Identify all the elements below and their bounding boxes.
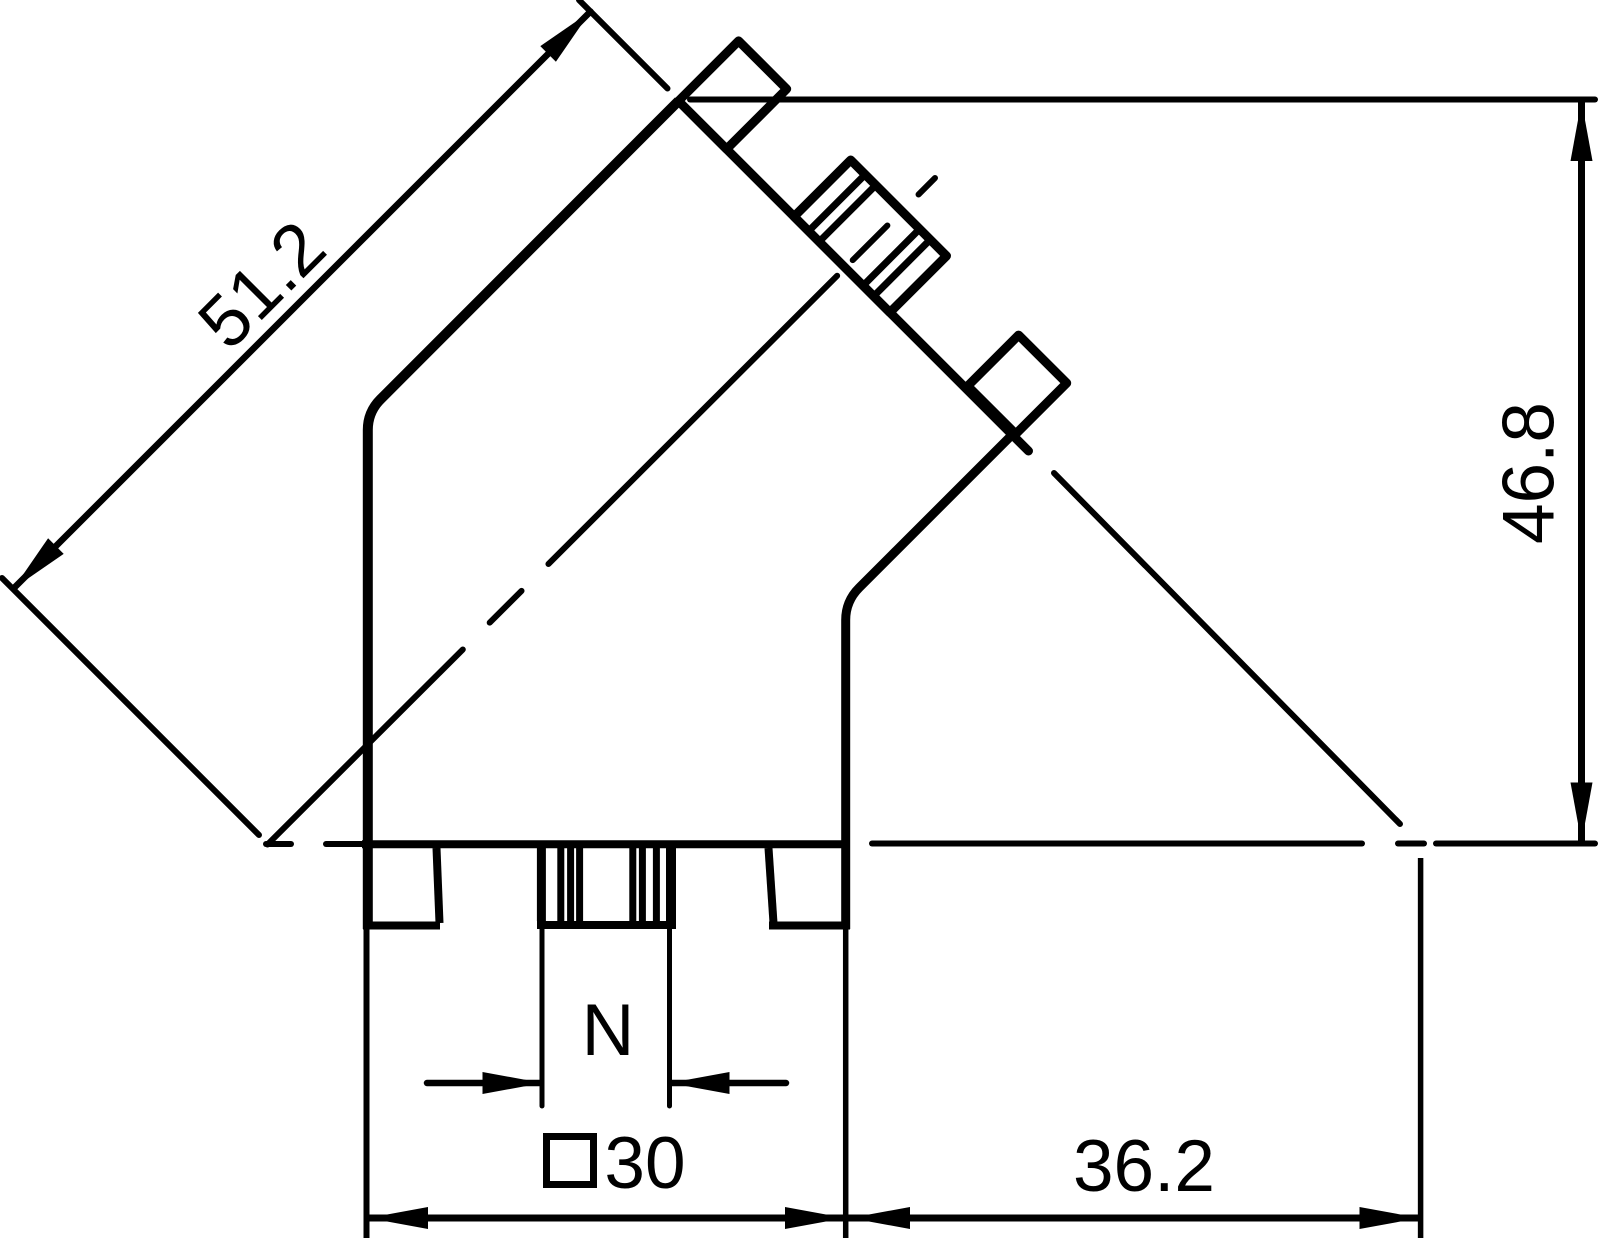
svg-text:N: N (582, 990, 635, 1071)
svg-text:30: 30 (604, 1123, 685, 1204)
svg-text:36.2: 36.2 (1073, 1126, 1215, 1207)
svg-text:46.8: 46.8 (1489, 402, 1570, 544)
